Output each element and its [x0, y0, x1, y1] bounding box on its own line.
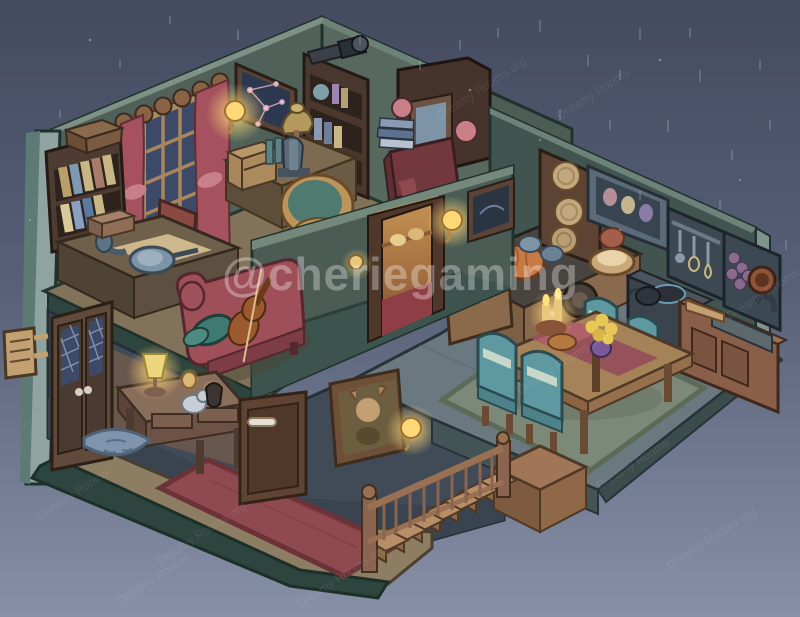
svg-text:@cheriegaming: @cheriegaming	[222, 248, 579, 300]
